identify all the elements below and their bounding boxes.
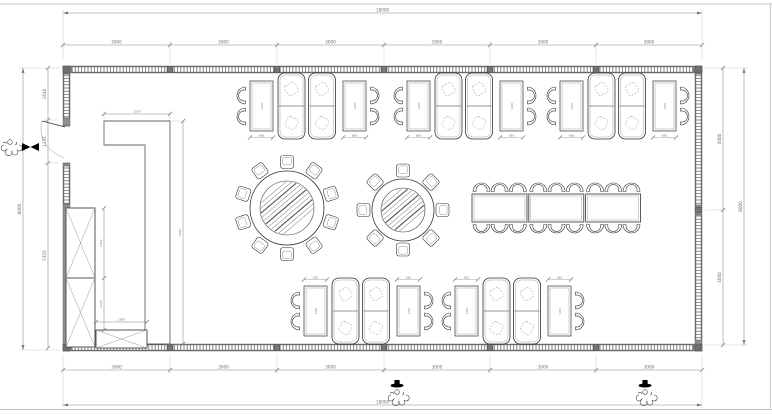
chair-icon xyxy=(509,183,526,192)
window-band xyxy=(493,345,593,350)
dining-table: 1200650 xyxy=(405,81,432,140)
banquet-table xyxy=(472,194,527,222)
tall-cabinet xyxy=(66,208,95,347)
mullion-post xyxy=(381,344,387,350)
booth-sofa xyxy=(514,278,541,344)
booth-seating-top: 1200650120065012006501200650120065012006… xyxy=(237,73,689,140)
booth-group: 12006501200650 xyxy=(291,275,433,344)
chair-icon xyxy=(281,156,294,169)
svg-text:1200: 1200 xyxy=(465,307,469,314)
chair-icon xyxy=(528,87,537,104)
door-opening xyxy=(62,126,70,163)
svg-text:1200: 1200 xyxy=(570,102,574,109)
booth-group: 12006501200650 xyxy=(237,73,379,140)
booth-sofa xyxy=(309,73,336,139)
left-dimension-lines: 1640113553258000 xyxy=(17,66,60,350)
svg-text:1200: 1200 xyxy=(510,102,514,109)
svg-text:3000: 3000 xyxy=(432,39,443,44)
svg-text:650: 650 xyxy=(557,275,563,279)
chair-icon xyxy=(605,225,622,234)
hat-marker-icon xyxy=(642,380,647,385)
svg-text:8000: 8000 xyxy=(738,201,743,212)
dining-table: 1200650 xyxy=(498,81,525,140)
svg-text:650: 650 xyxy=(352,133,358,137)
person-figure xyxy=(1,140,22,156)
window-band xyxy=(72,67,167,72)
window-band xyxy=(599,345,693,350)
svg-text:4000: 4000 xyxy=(717,272,722,283)
chair-icon xyxy=(357,204,370,217)
banquet-table xyxy=(529,194,584,222)
mullion-post xyxy=(274,344,280,350)
svg-text:3000: 3000 xyxy=(218,39,229,44)
svg-text:650: 650 xyxy=(259,133,265,137)
svg-text:3000: 3000 xyxy=(111,39,122,44)
booth-sofa xyxy=(363,278,390,344)
floor-plan-drawing: 3000300030003000300030001800030003000300… xyxy=(0,0,772,414)
chair-icon xyxy=(605,183,622,192)
chair-icon xyxy=(281,248,294,261)
bottom-dimension-lines: 30003000300030003000300018000 xyxy=(61,354,704,408)
svg-text:1500: 1500 xyxy=(118,317,125,321)
window-band xyxy=(696,74,701,205)
person-figure xyxy=(388,390,409,406)
chair-icon xyxy=(237,108,246,125)
svg-text:3000: 3000 xyxy=(325,39,336,44)
chair-icon xyxy=(681,108,690,125)
chair-icon xyxy=(237,87,246,104)
chair-icon xyxy=(548,183,565,192)
floor-plan-sheet: 3000300030003000300030001800030003000300… xyxy=(0,0,772,414)
chair-icon xyxy=(548,225,565,234)
person-figure xyxy=(636,390,657,406)
chair-icon xyxy=(394,108,403,125)
booth-group: 12006501200650 xyxy=(547,73,689,140)
chair-icon xyxy=(473,183,490,192)
svg-text:1200: 1200 xyxy=(558,307,562,314)
dining-table: 1200650 xyxy=(558,81,585,140)
round-table-small xyxy=(357,164,449,256)
hat-marker-icon xyxy=(394,380,399,385)
svg-text:1200: 1200 xyxy=(407,307,411,314)
mullion-post xyxy=(593,344,599,350)
chair-icon xyxy=(442,313,451,330)
chair-icon xyxy=(442,292,451,309)
booth-sofa xyxy=(435,73,462,139)
chair-icon xyxy=(491,225,508,234)
svg-text:2120: 2120 xyxy=(99,239,103,246)
mullion-post xyxy=(487,344,493,350)
mullion-post xyxy=(487,66,493,72)
mullion-post xyxy=(167,344,173,350)
svg-text:3000: 3000 xyxy=(325,364,336,369)
chair-icon xyxy=(547,108,556,125)
mullion-post xyxy=(167,66,173,72)
chair-icon xyxy=(623,225,640,234)
chair-icon xyxy=(397,243,410,256)
window-band xyxy=(64,166,69,204)
svg-text:1640: 1640 xyxy=(42,88,47,99)
window-band xyxy=(173,67,274,72)
booth-sofa xyxy=(466,73,493,139)
svg-text:650: 650 xyxy=(313,275,319,279)
dining-table: 1200650 xyxy=(395,275,422,336)
svg-text:650: 650 xyxy=(662,133,668,137)
view-marker-icon xyxy=(22,143,39,151)
svg-text:6300: 6300 xyxy=(178,229,182,236)
chair-icon xyxy=(323,214,339,230)
mullion-post xyxy=(274,66,280,72)
corner-post xyxy=(63,66,70,73)
partition-wall: 15006300 xyxy=(102,109,186,346)
dining-table: 1200650 xyxy=(546,275,573,336)
chair-icon xyxy=(371,87,380,104)
svg-text:3000: 3000 xyxy=(538,364,549,369)
chair-icon xyxy=(323,186,339,202)
booth-sofa xyxy=(332,278,359,344)
svg-text:18000: 18000 xyxy=(376,7,390,12)
chair-icon xyxy=(530,225,547,234)
corner-post xyxy=(695,344,702,351)
window-band xyxy=(493,67,593,72)
svg-text:2005: 2005 xyxy=(99,300,103,307)
banquet-table-row xyxy=(472,183,641,233)
chair-icon xyxy=(681,87,690,104)
booth-group: 12006501200650 xyxy=(442,275,584,344)
svg-text:3000: 3000 xyxy=(538,39,549,44)
dining-table: 1200650 xyxy=(651,81,678,140)
chair-icon xyxy=(528,108,537,125)
svg-text:1200: 1200 xyxy=(314,307,318,314)
svg-text:650: 650 xyxy=(509,133,515,137)
booth-sofa xyxy=(483,278,510,344)
window-band xyxy=(280,67,381,72)
banquet-table xyxy=(586,194,641,222)
svg-text:650: 650 xyxy=(406,275,412,279)
window-band xyxy=(387,345,487,350)
svg-text:1200: 1200 xyxy=(663,102,667,109)
right-dimension-lines: 400040008000 xyxy=(705,66,748,347)
chair-icon xyxy=(587,183,604,192)
top-dimension-lines: 30003000300030003000300018000 xyxy=(61,7,704,63)
svg-text:1200: 1200 xyxy=(417,102,421,109)
svg-text:1200: 1200 xyxy=(353,102,357,109)
svg-text:8000: 8000 xyxy=(17,203,22,214)
chair-icon xyxy=(587,225,604,234)
chair-icon xyxy=(235,186,251,202)
chair-icon xyxy=(509,225,526,234)
chair-icon xyxy=(547,87,556,104)
svg-text:4000: 4000 xyxy=(717,133,722,144)
mullion-post xyxy=(695,207,701,213)
mullion-post xyxy=(381,66,387,72)
window-band xyxy=(64,74,69,118)
svg-text:3000: 3000 xyxy=(111,364,122,369)
window-band xyxy=(696,215,701,340)
svg-text:3000: 3000 xyxy=(644,39,655,44)
dining-table: 1200650 xyxy=(302,275,329,336)
mullion-post xyxy=(593,66,599,72)
partition-outline xyxy=(104,121,170,344)
window-band xyxy=(599,67,693,72)
window-band xyxy=(173,345,274,350)
svg-text:1500: 1500 xyxy=(133,109,140,113)
booth-group: 12006501200650 xyxy=(394,73,536,140)
svg-text:5325: 5325 xyxy=(42,250,47,261)
chair-icon xyxy=(397,164,410,177)
chair-icon xyxy=(425,292,434,309)
svg-text:18000: 18000 xyxy=(376,399,390,404)
chair-icon xyxy=(473,225,490,234)
chair-icon xyxy=(371,108,380,125)
svg-text:3000: 3000 xyxy=(644,364,655,369)
round-table-large xyxy=(235,156,339,261)
svg-text:650: 650 xyxy=(416,133,422,137)
chair-icon xyxy=(291,313,300,330)
booth-seating-bottom: 1200650120065012006501200650 xyxy=(291,275,584,344)
dining-table: 1200650 xyxy=(248,81,275,140)
corner-post xyxy=(695,66,702,73)
svg-text:650: 650 xyxy=(569,133,575,137)
cabinets: 212020051500 xyxy=(66,206,149,348)
chair-icon xyxy=(436,204,449,217)
svg-text:1200: 1200 xyxy=(260,102,264,109)
chair-icon xyxy=(291,292,300,309)
booth-sofa xyxy=(278,73,305,139)
svg-text:650: 650 xyxy=(464,275,470,279)
chair-icon xyxy=(425,313,434,330)
chair-icon xyxy=(491,183,508,192)
chair-icon xyxy=(566,225,583,234)
dining-table: 1200650 xyxy=(453,275,480,336)
booth-sofa xyxy=(588,73,615,139)
chair-icon xyxy=(566,183,583,192)
chair-icon xyxy=(394,87,403,104)
booth-sofa xyxy=(619,73,646,139)
chair-icon xyxy=(235,214,251,230)
chair-icon xyxy=(576,313,585,330)
svg-text:3000: 3000 xyxy=(218,364,229,369)
chair-icon xyxy=(530,183,547,192)
chair-icon xyxy=(576,292,585,309)
window-band xyxy=(387,67,487,72)
svg-text:3000: 3000 xyxy=(432,364,443,369)
chair-icon xyxy=(623,183,640,192)
dining-table: 1200650 xyxy=(341,81,368,140)
window-band xyxy=(280,345,381,350)
